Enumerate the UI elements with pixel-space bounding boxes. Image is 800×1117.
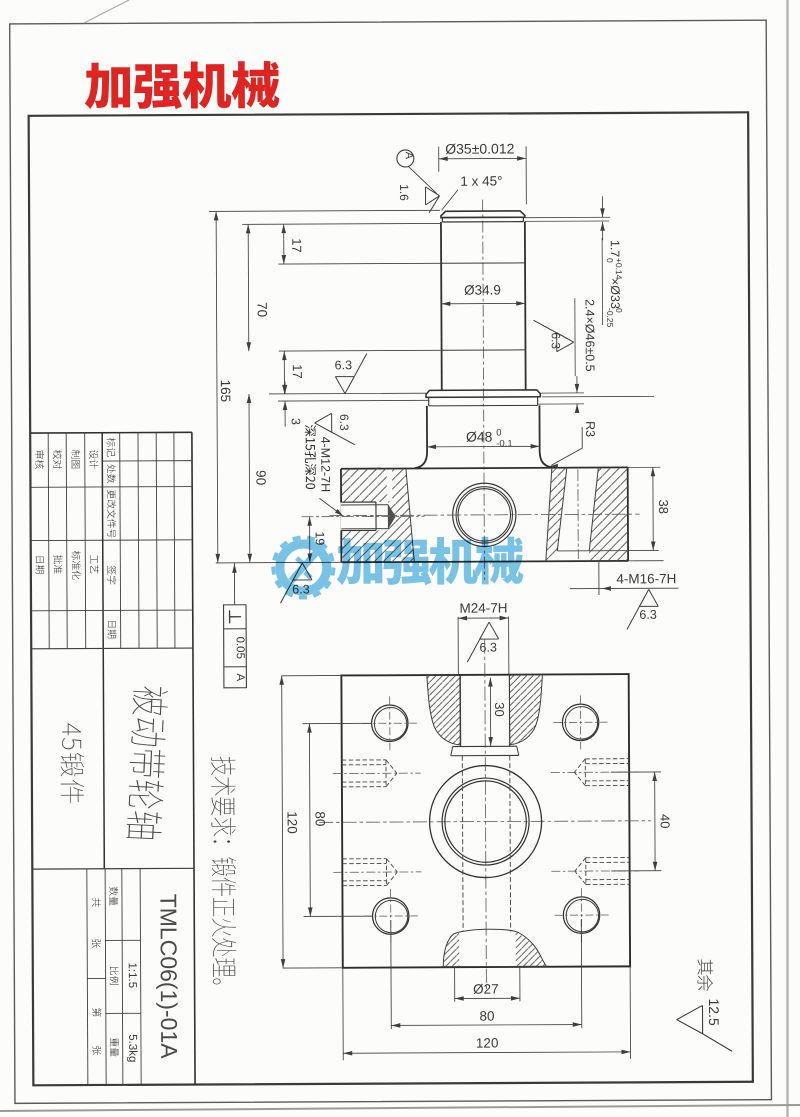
svg-text:1:1.5: 1:1.5 <box>126 962 138 988</box>
svg-text:4-M16-7H: 4-M16-7H <box>616 571 676 586</box>
svg-text:0.05: 0.05 <box>234 637 246 659</box>
svg-text:2.4×Ø46±0.5: 2.4×Ø46±0.5 <box>583 299 597 372</box>
svg-text:4-M12-7H: 4-M12-7H <box>318 437 332 493</box>
svg-text:6.3: 6.3 <box>480 641 497 655</box>
svg-text:Ø34.9: Ø34.9 <box>464 283 501 298</box>
svg-text:1 x 45°: 1 x 45° <box>460 173 502 188</box>
svg-text:Ø27: Ø27 <box>473 982 499 997</box>
svg-text:30: 30 <box>492 702 507 717</box>
svg-text:6.3: 6.3 <box>549 332 563 349</box>
svg-text:5.3kg: 5.3kg <box>126 1034 138 1062</box>
svg-text:80: 80 <box>479 1009 494 1024</box>
svg-text:-0.25: -0.25 <box>605 308 615 328</box>
svg-text:40: 40 <box>658 814 673 829</box>
svg-text:A: A <box>403 152 415 160</box>
svg-text:17: 17 <box>289 238 304 253</box>
svg-text:R3: R3 <box>583 421 597 437</box>
svg-text:M24-7H: M24-7H <box>459 600 507 615</box>
svg-text:6.3: 6.3 <box>337 414 351 431</box>
svg-text:17: 17 <box>290 364 305 379</box>
svg-text:6.3: 6.3 <box>335 358 352 372</box>
svg-text:120: 120 <box>476 1036 499 1051</box>
svg-text:80: 80 <box>313 811 328 826</box>
svg-text:-0.1: -0.1 <box>496 438 512 449</box>
svg-text:0: 0 <box>496 428 501 439</box>
svg-text:1.7: 1.7 <box>608 240 622 257</box>
svg-text:165: 165 <box>218 380 233 403</box>
svg-text:Ø35±0.012: Ø35±0.012 <box>445 140 514 156</box>
svg-text:×Ø33: ×Ø33 <box>608 278 622 309</box>
svg-text:A: A <box>234 673 246 681</box>
svg-text:6.3: 6.3 <box>639 608 656 622</box>
svg-text:Ø48: Ø48 <box>466 429 493 445</box>
svg-text:38: 38 <box>656 499 671 514</box>
svg-text:12.5: 12.5 <box>706 998 722 1026</box>
svg-text:120: 120 <box>285 811 300 834</box>
svg-text:90: 90 <box>253 470 268 485</box>
svg-text:0: 0 <box>605 258 615 263</box>
svg-text:70: 70 <box>255 302 270 317</box>
svg-text:3: 3 <box>289 418 303 425</box>
svg-text:1.6: 1.6 <box>397 184 411 201</box>
svg-text:TMLC06(1)-01A: TMLC06(1)-01A <box>155 894 182 1060</box>
